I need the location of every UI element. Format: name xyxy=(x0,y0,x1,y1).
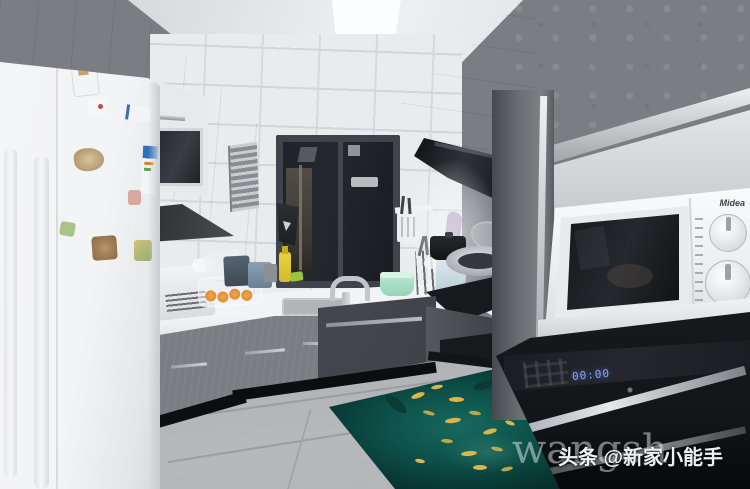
towel-pattern xyxy=(283,221,291,231)
orange-fruit xyxy=(241,289,253,301)
mat-fish xyxy=(473,465,487,470)
mat-fish xyxy=(423,410,436,417)
window-reflection xyxy=(348,145,360,156)
fridge-magnet xyxy=(128,190,141,205)
watermark-toutiao: 头条 @新家小能手 xyxy=(558,446,750,474)
microwave-brand-label: Midea xyxy=(697,198,745,210)
window-mullion xyxy=(338,142,343,281)
fridge-magnet xyxy=(59,221,76,237)
microwave-knob-upper xyxy=(709,214,747,252)
knob-scale-marks xyxy=(695,218,703,310)
storage-bin xyxy=(223,255,251,286)
knob-pointer xyxy=(726,217,731,231)
floor-grout-line xyxy=(286,409,311,489)
fridge-magnet-souvenir xyxy=(91,235,118,261)
colander xyxy=(380,272,414,296)
mat-fish xyxy=(411,391,426,400)
faucet-arch xyxy=(330,276,370,301)
fridge-magnet-card xyxy=(88,98,106,114)
oven-button-grid xyxy=(523,358,569,388)
mat-fish xyxy=(431,384,444,390)
orange-fruit xyxy=(205,290,217,302)
fridge-magnet-souvenir xyxy=(73,146,106,173)
fridge-handle xyxy=(34,156,49,489)
window-reflection xyxy=(297,147,317,162)
fridge-side-shade xyxy=(148,82,160,489)
vent-louver-door xyxy=(228,142,259,212)
mat-fish xyxy=(449,397,464,402)
glass-reflection xyxy=(574,226,610,271)
card-dot xyxy=(98,104,103,109)
refrigerator xyxy=(0,52,160,489)
colander-rim xyxy=(380,272,414,278)
fridge-door-seam xyxy=(56,64,58,489)
mat-fish xyxy=(505,419,516,426)
orange-fruit xyxy=(217,291,229,303)
glass-cabinet-door xyxy=(157,128,203,186)
mat-fish xyxy=(415,458,426,464)
bottle-cap xyxy=(282,246,288,254)
mat-leaf xyxy=(383,392,409,416)
microwave-door-glass xyxy=(567,214,679,310)
mat-fish xyxy=(445,417,462,424)
sponge xyxy=(289,271,303,282)
pot-lid-knob xyxy=(445,232,453,238)
drawer-handle xyxy=(326,317,422,328)
glass-reflection xyxy=(607,264,653,288)
orange-fruit xyxy=(229,288,241,300)
fridge-handle xyxy=(4,148,17,478)
window-reflection xyxy=(351,177,378,187)
drawer-handle xyxy=(171,362,207,368)
knob-pointer xyxy=(725,264,731,280)
kitchen-photo: Midea 00:00 xyxy=(0,0,750,489)
gray-jar xyxy=(264,264,277,282)
window-door-edge xyxy=(299,165,302,270)
drawer-handle xyxy=(245,348,285,354)
mat-fish xyxy=(469,410,481,416)
